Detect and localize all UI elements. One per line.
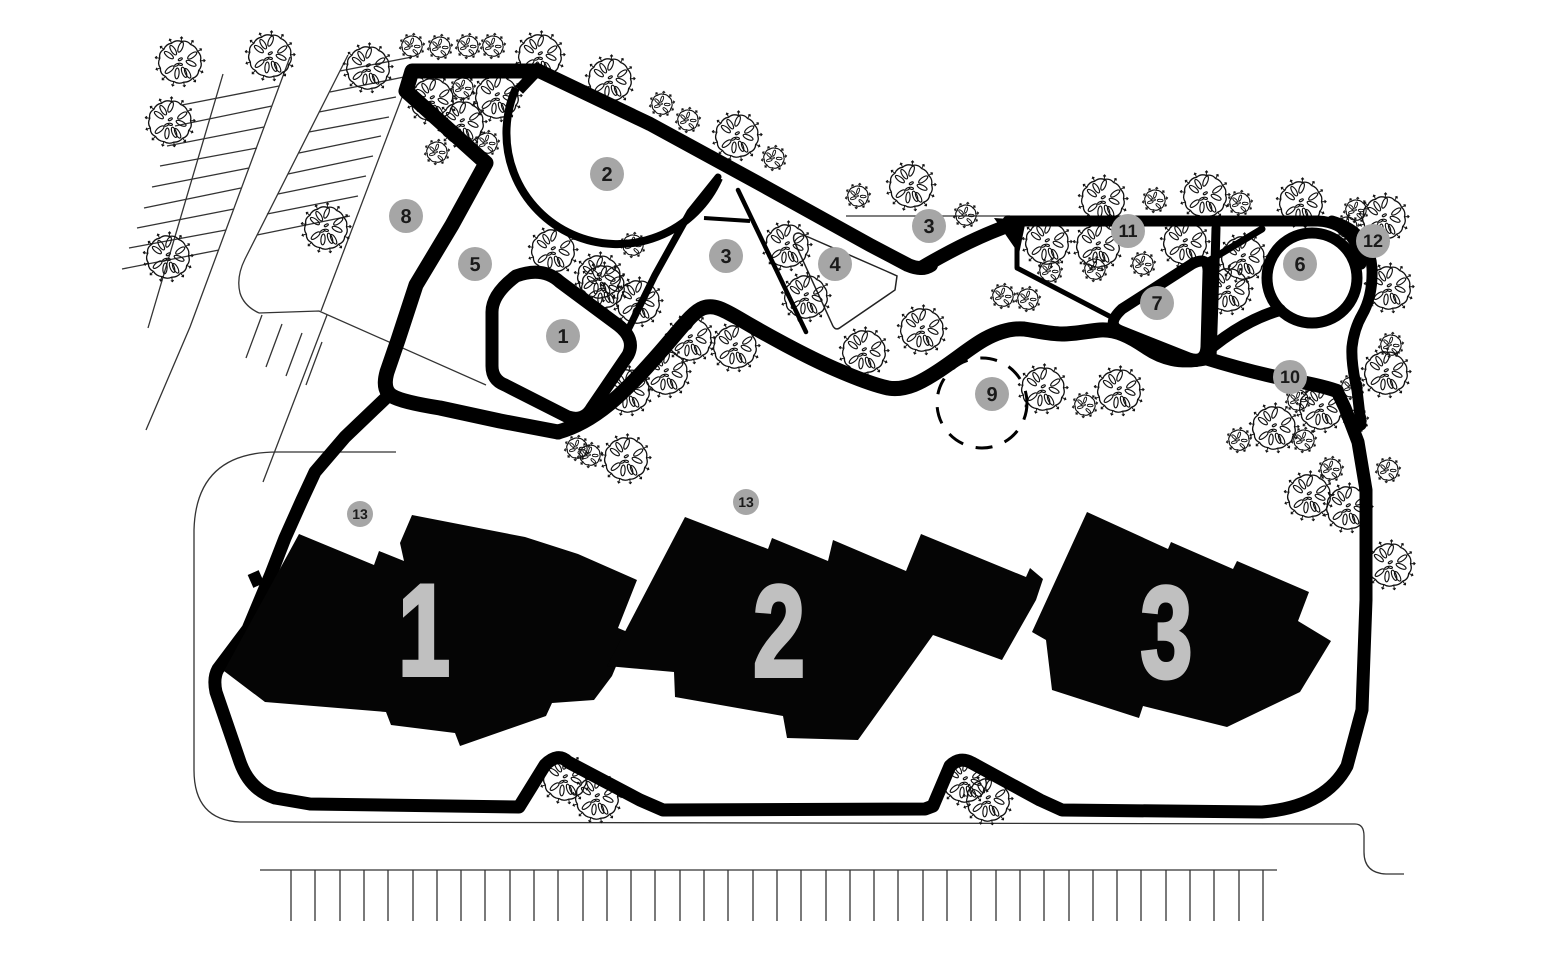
svg-text:4: 4 xyxy=(829,254,841,276)
svg-text:3: 3 xyxy=(720,246,731,268)
svg-text:5: 5 xyxy=(469,254,480,276)
svg-text:1: 1 xyxy=(557,326,568,348)
svg-text:6: 6 xyxy=(1294,254,1305,276)
svg-text:10: 10 xyxy=(1280,367,1300,387)
svg-text:9: 9 xyxy=(986,384,997,406)
svg-text:2: 2 xyxy=(753,558,805,704)
svg-text:3: 3 xyxy=(1140,559,1192,705)
svg-text:12: 12 xyxy=(1363,231,1383,251)
svg-text:8: 8 xyxy=(400,206,411,228)
svg-text:13: 13 xyxy=(352,506,368,522)
svg-text:1: 1 xyxy=(398,557,450,703)
svg-text:3: 3 xyxy=(923,216,934,238)
svg-text:13: 13 xyxy=(738,494,754,510)
svg-text:7: 7 xyxy=(1151,293,1162,315)
svg-text:11: 11 xyxy=(1118,221,1137,241)
svg-text:2: 2 xyxy=(601,164,612,186)
